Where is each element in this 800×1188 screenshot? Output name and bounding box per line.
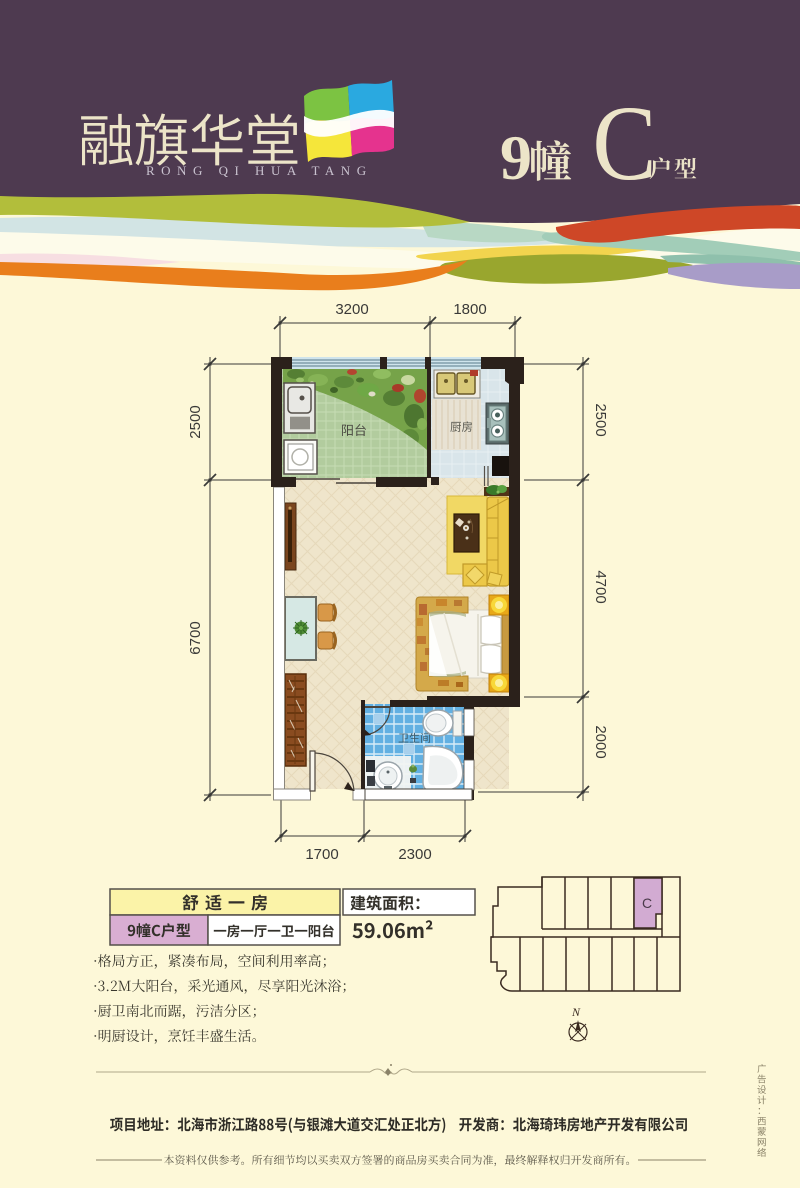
svg-text:9: 9	[500, 122, 532, 193]
svg-text:C: C	[642, 895, 652, 911]
svg-text:2500: 2500	[592, 403, 609, 436]
svg-text:1700: 1700	[305, 846, 338, 863]
svg-text:1800: 1800	[453, 301, 486, 318]
svg-text:2500: 2500	[187, 405, 204, 438]
svg-text:N: N	[571, 1005, 581, 1019]
svg-text:RONG QI HUA TANG: RONG QI HUA TANG	[146, 163, 373, 178]
svg-text:6700: 6700	[187, 621, 204, 654]
svg-text:C: C	[592, 84, 656, 203]
svg-text:2300: 2300	[398, 846, 431, 863]
svg-text:2000: 2000	[592, 725, 609, 758]
svg-text:4700: 4700	[592, 570, 609, 603]
svg-text:3200: 3200	[335, 301, 368, 318]
